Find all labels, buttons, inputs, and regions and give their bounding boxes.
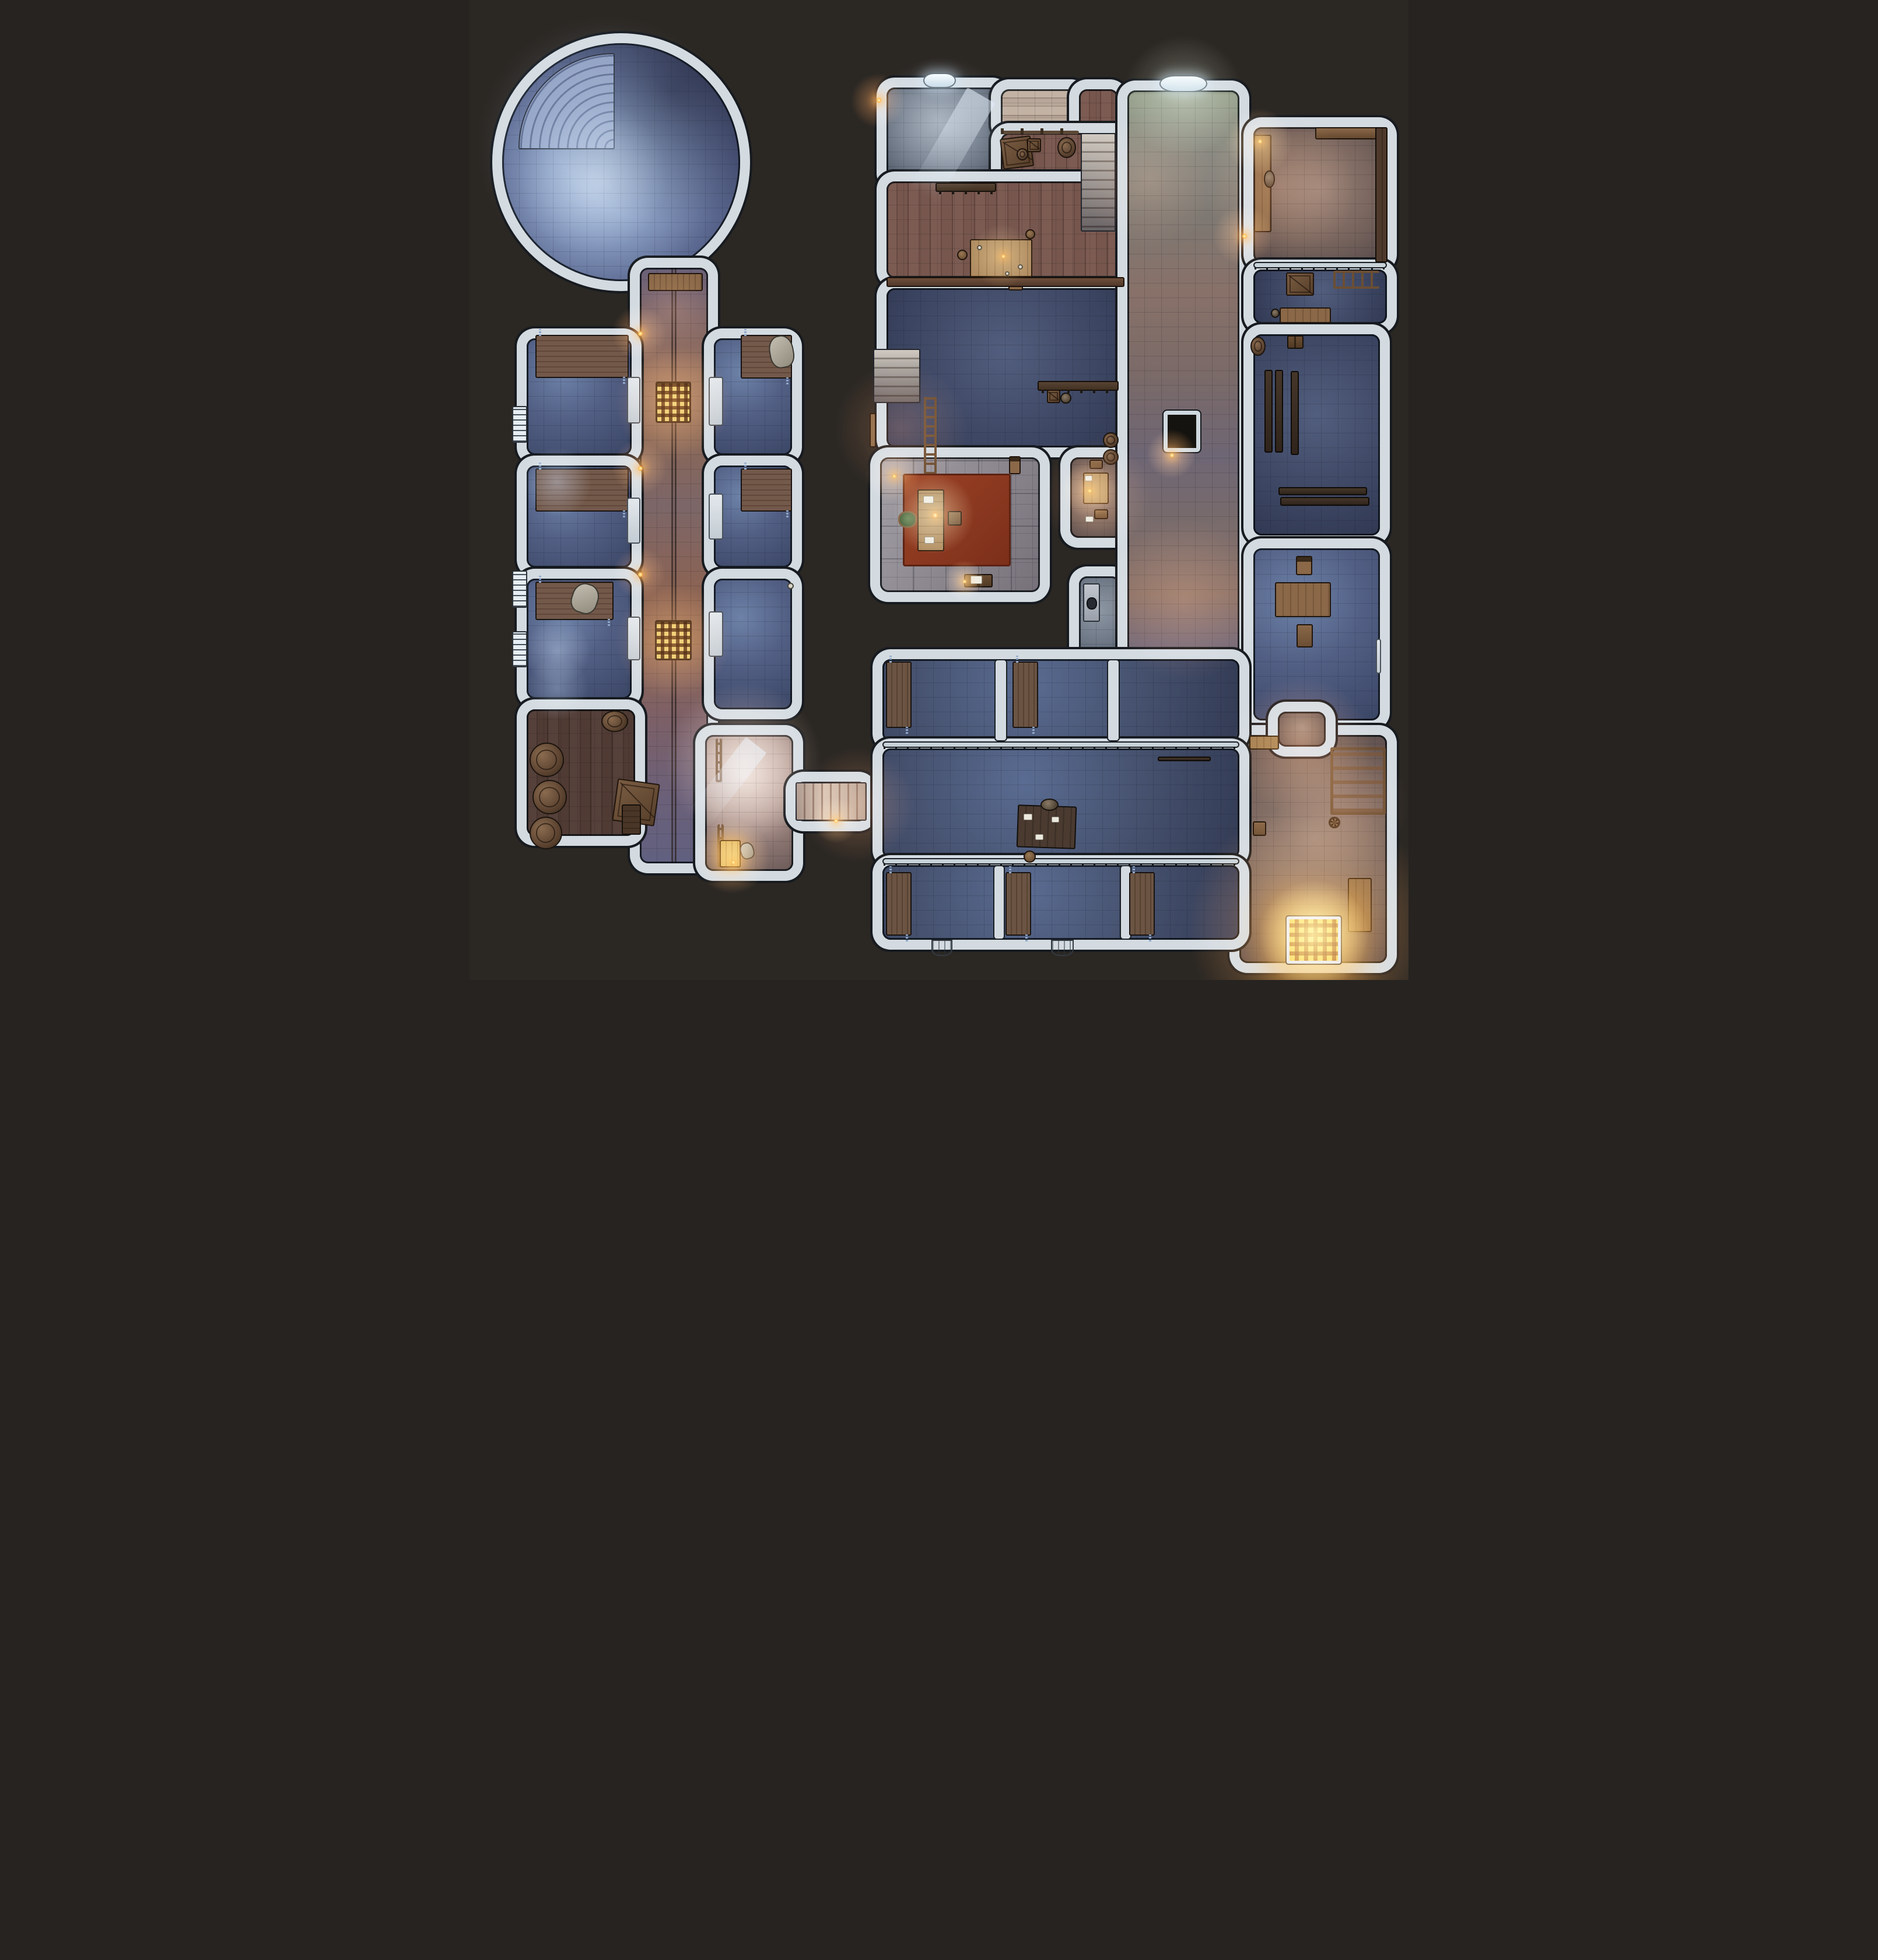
guard-ladder [716,738,722,782]
flat-ladder [1333,271,1379,289]
cell-door [709,494,723,540]
crate [1047,390,1060,403]
drain-chute [931,940,952,956]
barracks-bed [886,661,912,728]
floor-grate [656,381,691,423]
paper [1024,814,1032,820]
bc-partition-ne [1107,659,1120,741]
tower-room [502,43,740,281]
drain-chute [1051,940,1074,956]
paper [1052,817,1059,822]
paper [1085,516,1094,522]
cell-door [627,498,640,544]
cell-door [709,611,723,657]
privy-seat [1087,597,1097,610]
mug [977,245,982,250]
barracks-cells-top [882,659,1240,741]
barrel [1057,137,1076,158]
barrel [1103,432,1119,448]
bench [1278,487,1367,495]
alcove-bench [1094,509,1108,519]
barrel [532,780,567,814]
mug [1018,264,1023,269]
torture-rack [1330,747,1386,815]
beam-separator [887,277,1124,287]
stair-landing [1079,89,1118,132]
floor-grate [655,620,692,660]
candle-flame [834,819,838,823]
paper [1085,475,1092,481]
loft-walkway [1001,89,1079,132]
east-door [1376,639,1381,674]
shelf [622,804,641,835]
chair [1296,556,1312,575]
green-chair [898,511,917,528]
keg [1017,148,1028,160]
bc-rail-lower [882,858,1240,864]
wood-panel-wall [1375,127,1388,263]
bc-partition-sw [993,865,1005,940]
barracks-bed [1129,872,1155,936]
tower-stairs [518,53,615,149]
bucket [1060,393,1071,404]
fire-grate [1287,916,1341,964]
sword-table [1280,307,1331,323]
bench [1275,370,1283,453]
torture-bench [1249,736,1279,750]
candle-flame [731,860,735,864]
weapon-rack [936,183,996,192]
guard-hall [887,288,1124,447]
candle-flame [1001,254,1005,258]
barracks-table [1016,804,1076,849]
cell-door [627,377,640,423]
west-door [870,413,876,447]
bc-partition-nw [994,659,1007,741]
ne-desk [1275,582,1331,617]
stool [1253,821,1266,836]
barracks-bed [1012,661,1038,728]
hall-stairs [873,349,920,403]
mug [1005,271,1010,276]
cell-door [627,617,640,660]
office-ne [1253,548,1380,720]
candle-flame [1258,139,1262,143]
entry-hall [887,87,1000,181]
cell-window [512,406,527,443]
lantern-flame [933,513,938,518]
stool [1025,229,1035,239]
main-corridor [640,268,708,863]
candle-flame [1088,489,1092,493]
pot [1040,799,1059,811]
chair [1009,456,1021,474]
west-stairs [796,782,867,821]
mug [787,583,794,589]
stairs-down [1081,133,1116,232]
cell-bed [535,468,629,512]
bench [1280,497,1369,506]
alcove-bench [1089,460,1103,469]
bench [1264,370,1273,453]
barrel [530,743,564,777]
stool [957,250,968,260]
workshop [1253,127,1387,263]
barrel [601,710,628,732]
torch-flame [1242,234,1247,239]
cell-right-3 [714,579,792,709]
stool [1297,624,1313,647]
crate [1286,272,1314,296]
bench [1291,371,1299,455]
book [970,576,982,584]
candle-flame [1170,453,1174,457]
cell-bed [535,335,629,378]
tower-door [648,273,703,291]
candle-flame [892,474,896,478]
torch-flame [638,466,643,471]
barrel [530,817,562,849]
jug [1264,170,1275,188]
paper [924,537,934,544]
chest [1287,335,1304,349]
stool [1024,850,1036,863]
paper [923,496,934,503]
bc-rail-upper [882,741,1240,748]
barracks-bed [1005,872,1031,936]
ne-rail [1253,262,1387,268]
torch-flame [638,572,643,577]
torch-flame [877,98,881,103]
barrel [1250,337,1266,356]
barracks-cells-bottom [882,865,1240,940]
tool-table [1348,878,1372,932]
skylight [1159,75,1207,92]
paper [1035,834,1043,840]
barracks-bed [886,872,912,936]
stub-beam [1158,757,1211,761]
candle-flame [963,580,966,583]
jug [1271,309,1280,318]
barrel [1103,449,1119,465]
torture-passage [1278,712,1326,747]
cell-window [512,631,527,667]
battle-map-canvas[interactable] [469,0,1408,980]
skylight [923,73,956,88]
long-corridor [1127,90,1239,721]
office-stool [948,511,962,526]
cell-bed [741,468,792,512]
walkway-railing [1001,131,1079,134]
torch-flame [638,331,643,336]
cell-door [709,377,723,426]
cell-window [512,570,527,608]
hall-ladder [924,397,937,474]
crate [1027,138,1041,152]
glowing-table [720,840,741,867]
rack-wheel [1329,817,1340,828]
murder-hole [1164,411,1200,452]
